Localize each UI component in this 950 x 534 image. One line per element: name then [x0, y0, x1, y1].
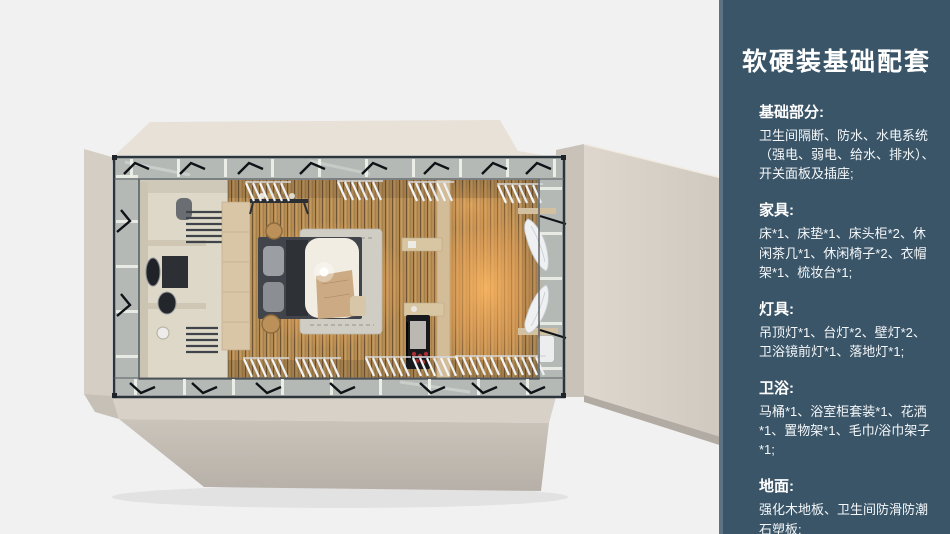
wall-shelf [404, 303, 444, 316]
shower-drain [157, 327, 169, 339]
spec-section-lighting: 灯具: 吊顶灯*1、台灯*2、壁灯*2、卫浴镜前灯*1、落地灯*1; [759, 299, 937, 361]
base-platform-top [112, 396, 556, 423]
cushion [350, 296, 366, 316]
toilet [158, 292, 176, 314]
bedside-table [262, 315, 280, 333]
daybed-cushion [538, 336, 554, 362]
section-heading: 灯具: [759, 299, 937, 321]
spec-section-basics: 基础部分: 卫生间隔断、防水、水电系统（强电、弱电、给水、排水）、开关面板及插座… [759, 102, 937, 183]
left-flap [84, 149, 112, 406]
section-heading: 家具: [759, 200, 937, 222]
section-body: 卫生间隔断、防水、水电系统（强电、弱电、给水、排水）、开关面板及插座; [759, 126, 937, 183]
spec-section-flooring: 地面: 强化木地板、卫生间防滑防潮石塑板; [759, 476, 937, 534]
spec-sections: 基础部分: 卫生间隔断、防水、水电系统（强电、弱电、给水、排水）、开关面板及插座… [723, 78, 950, 534]
spec-section-furniture: 家具: 床*1、床垫*1、床头柜*2、休闲茶几*1、休闲椅子*2、衣帽架*1、梳… [759, 200, 937, 281]
room [112, 155, 566, 398]
vanity-mirror [146, 258, 160, 286]
section-heading: 基础部分: [759, 102, 937, 124]
wardrobe [222, 202, 250, 350]
section-body: 强化木地板、卫生间防滑防潮石塑板; [759, 500, 937, 534]
double-bed [258, 237, 366, 319]
bedside-table [266, 223, 282, 239]
vanity-unit [162, 256, 188, 288]
minibar-cabinet [406, 315, 430, 369]
section-body: 马桶*1、浴室柜套装*1、花洒*1、置物架*1、毛巾/浴巾架子*1; [759, 402, 937, 459]
section-heading: 卫浴: [759, 378, 937, 400]
floorplan-svg [0, 0, 719, 534]
section-heading: 地面: [759, 476, 937, 498]
section-body: 床*1、床垫*1、床头柜*2、休闲茶几*1、休闲椅子*2、衣帽架*1、梳妆台*1… [759, 224, 937, 281]
panel-title: 软硬装基础配套 [729, 42, 944, 78]
wall-lamp [176, 198, 192, 220]
bathroom-shelf [148, 303, 206, 309]
floorplan-render [0, 0, 719, 534]
table-lamp [320, 268, 329, 277]
pillow [263, 282, 284, 312]
spec-panel: 软硬装基础配套 基础部分: 卫生间隔断、防水、水电系统（强电、弱电、给水、排水）… [719, 0, 950, 534]
base-platform-front [119, 419, 549, 491]
pillow [263, 246, 284, 276]
section-body: 吊顶灯*1、台灯*2、壁灯*2、卫浴镜前灯*1、落地灯*1; [759, 323, 937, 361]
folded-runner [286, 240, 308, 316]
spec-section-bathroom: 卫浴: 马桶*1、浴室柜套装*1、花洒*1、置物架*1、毛巾/浴巾架子*1; [759, 378, 937, 459]
slide-canvas: 软硬装基础配套 基础部分: 卫生间隔断、防水、水电系统（强电、弱电、给水、排水）… [0, 0, 950, 534]
